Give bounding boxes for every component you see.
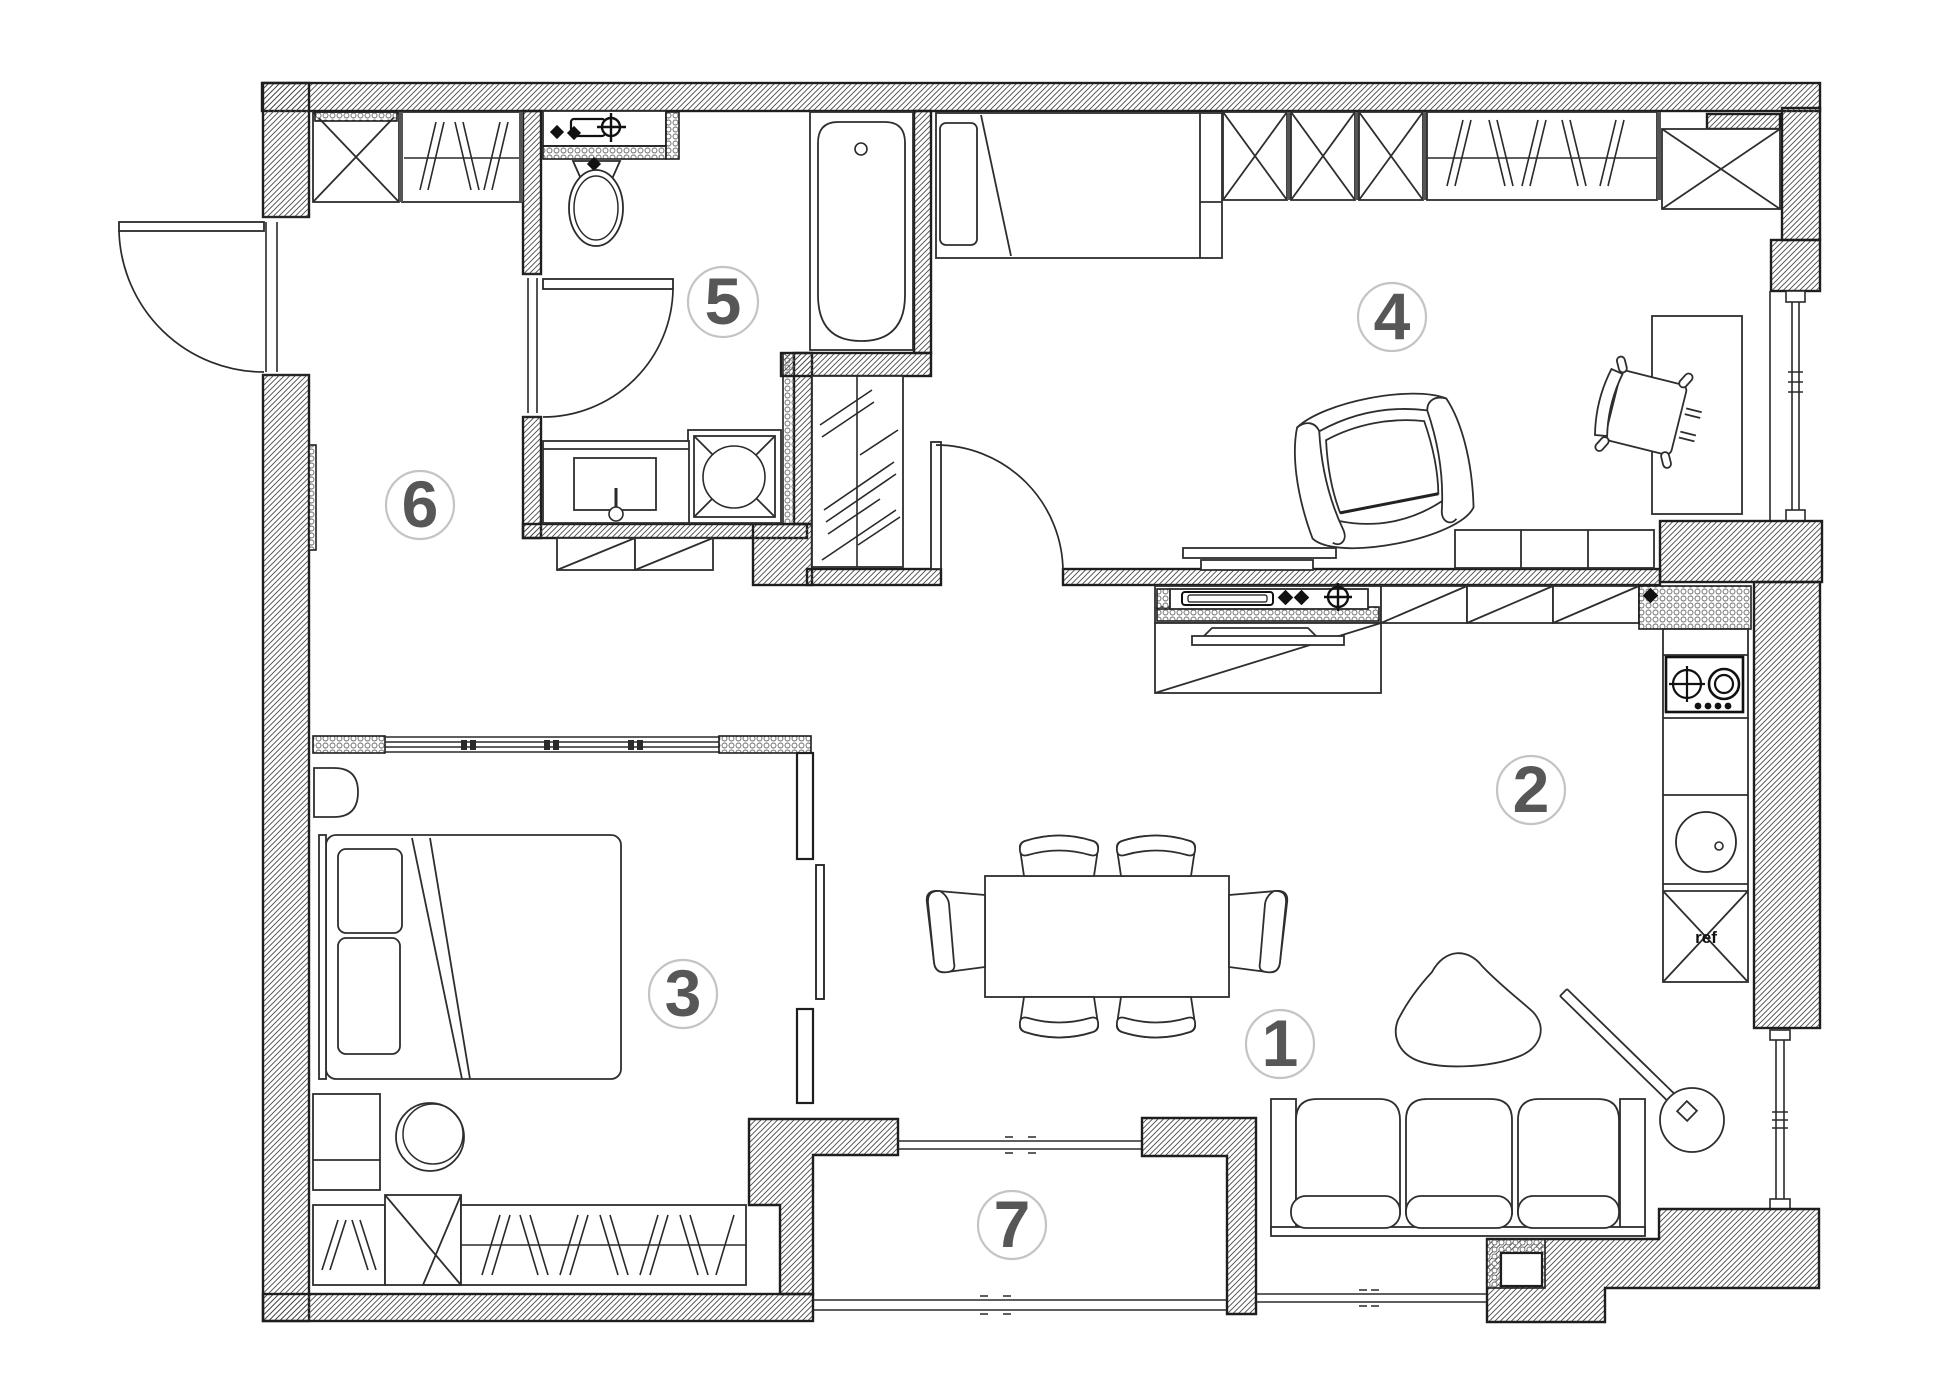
svg-text:1: 1 — [1262, 1006, 1299, 1080]
svg-text:4: 4 — [1374, 279, 1411, 353]
svg-text:6: 6 — [402, 467, 439, 541]
svg-text:ref: ref — [1695, 928, 1717, 947]
svg-text:7: 7 — [994, 1187, 1031, 1261]
svg-text:3: 3 — [665, 956, 702, 1030]
svg-text:2: 2 — [1513, 752, 1550, 826]
svg-text:5: 5 — [705, 264, 742, 338]
